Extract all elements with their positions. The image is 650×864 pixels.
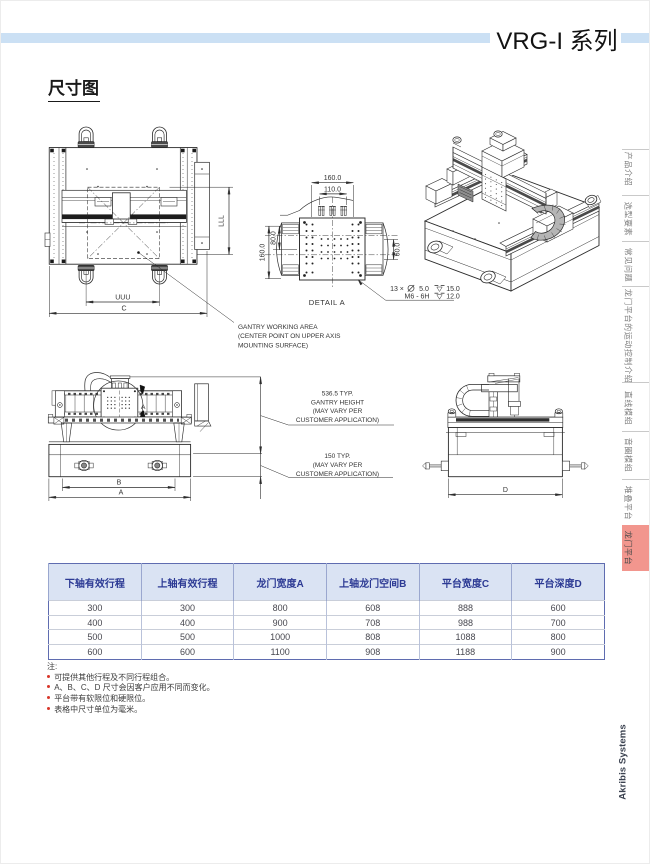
svg-text:M6 - 6H: M6 - 6H <box>405 294 430 301</box>
svg-text:110.0: 110.0 <box>324 187 341 194</box>
svg-text:60.0: 60.0 <box>394 243 401 257</box>
svg-text:CUSTOMER APPLICATION): CUSTOMER APPLICATION) <box>296 417 379 424</box>
svg-text:CUSTOMER APPLICATION): CUSTOMER APPLICATION) <box>296 471 379 478</box>
svg-text:A: A <box>119 489 124 496</box>
svg-text:C: C <box>121 305 126 312</box>
svg-text:(CENTER POINT ON UPPER AXIS: (CENTER POINT ON UPPER AXIS <box>238 333 341 340</box>
svg-text:5.0: 5.0 <box>419 286 429 293</box>
svg-text:536.5 TYP.: 536.5 TYP. <box>322 391 354 398</box>
svg-text:15.0: 15.0 <box>446 286 460 293</box>
svg-text:DETAIL A: DETAIL A <box>309 298 346 307</box>
svg-text:GANTRY WORKING AREA: GANTRY WORKING AREA <box>238 324 318 331</box>
svg-text:(MAY VARY PER: (MAY VARY PER <box>313 408 363 415</box>
svg-text:(MAY VARY PER: (MAY VARY PER <box>313 462 363 469</box>
svg-text:160.0: 160.0 <box>324 175 342 182</box>
svg-text:A: A <box>141 404 146 411</box>
svg-text:UUU: UUU <box>115 294 130 301</box>
svg-text:LLL: LLL <box>219 215 226 227</box>
svg-text:150 TYP.: 150 TYP. <box>324 453 350 460</box>
svg-text:D: D <box>503 487 508 494</box>
svg-text:MOUNTING SURFACE): MOUNTING SURFACE) <box>238 342 308 349</box>
svg-text:80.0: 80.0 <box>271 231 278 245</box>
svg-text:B: B <box>117 480 122 487</box>
svg-text:13 ×: 13 × <box>390 286 404 293</box>
svg-text:12.0: 12.0 <box>446 294 460 301</box>
svg-text:GANTRY HEIGHT: GANTRY HEIGHT <box>311 399 364 406</box>
svg-text:160.0: 160.0 <box>260 244 267 262</box>
